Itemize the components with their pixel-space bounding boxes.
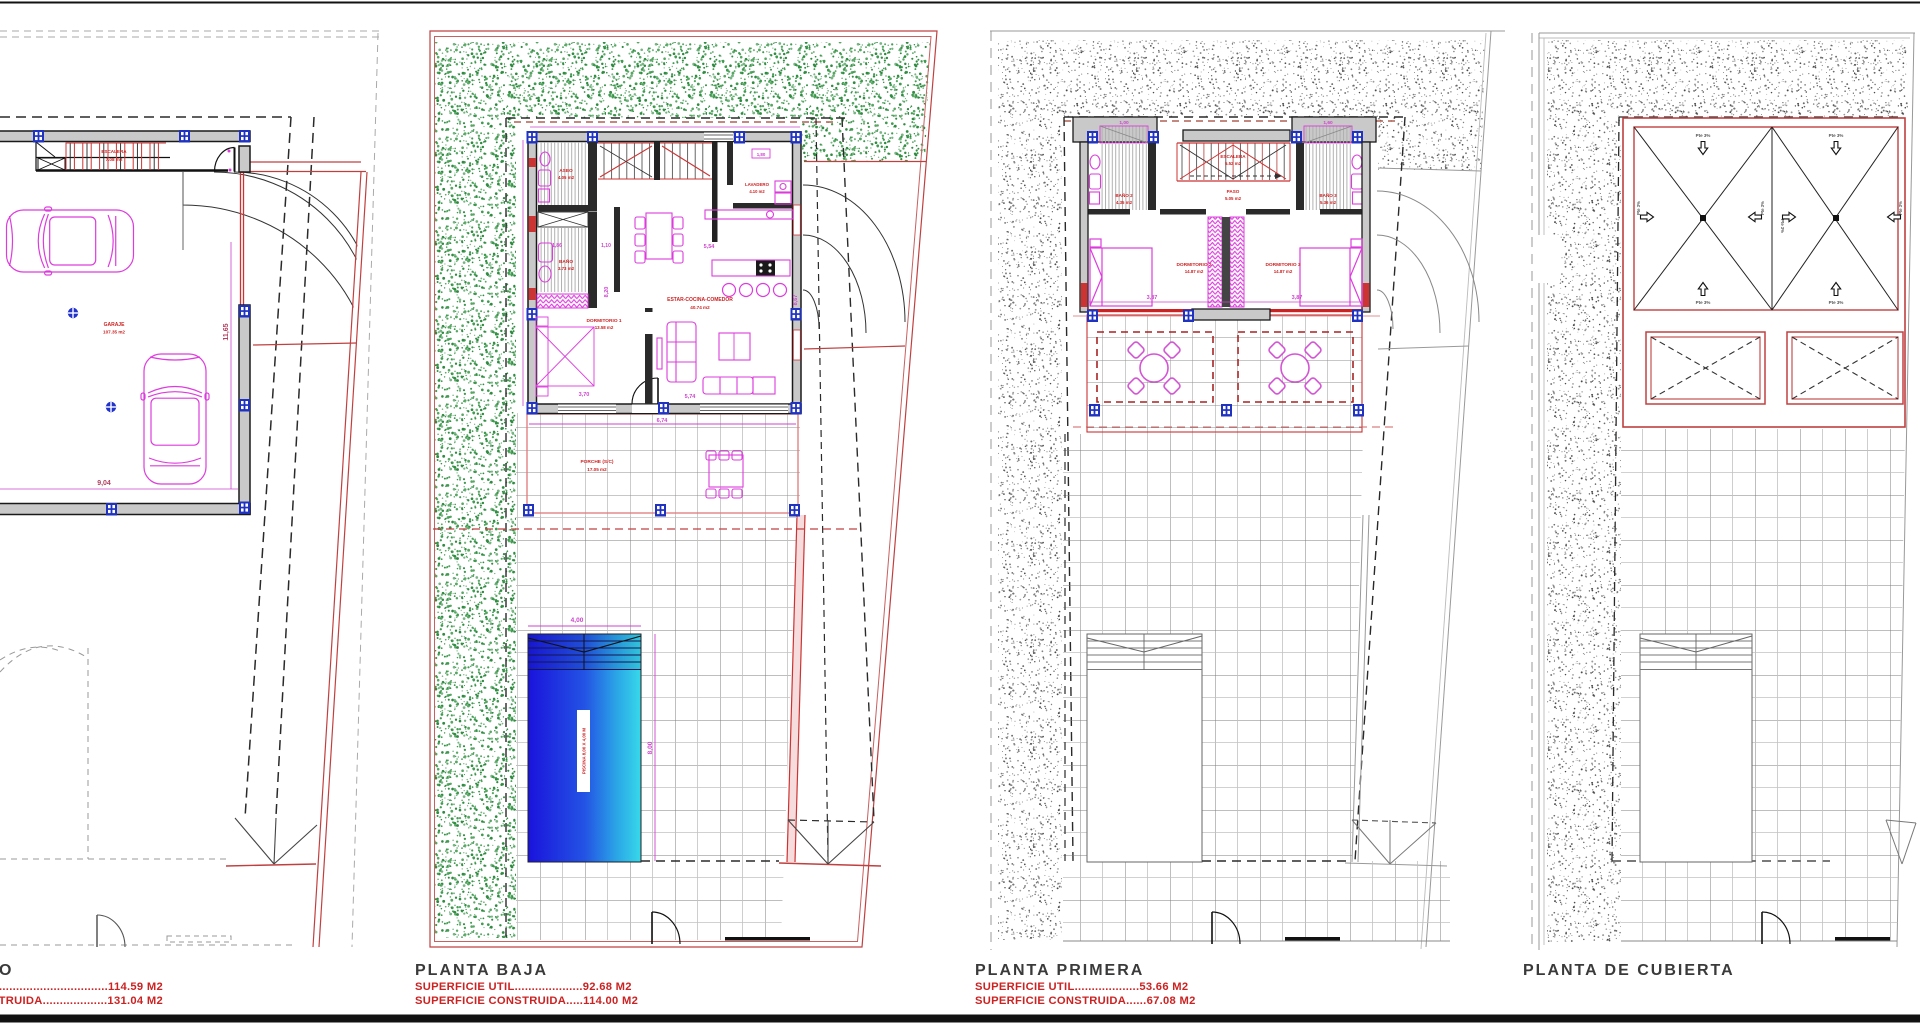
svg-text:DORMITORIO 3: DORMITORIO 3 [1265, 262, 1300, 268]
svg-text:ESCALERA: ESCALERA [1220, 154, 1246, 159]
svg-text:7.08 m2: 7.08 m2 [106, 157, 123, 162]
svg-text:9,04: 9,04 [97, 480, 111, 487]
svg-text:1,86: 1,86 [552, 243, 562, 249]
svg-text:4,00: 4,00 [571, 617, 584, 624]
svg-text:5,74: 5,74 [685, 394, 697, 400]
svg-text:107.35 m2: 107.35 m2 [103, 330, 125, 335]
svg-text:PASO: PASO [1227, 189, 1240, 194]
svg-text:SUPERFICIE UTIL...............: SUPERFICIE UTIL...................53.66 … [975, 981, 1188, 993]
svg-text:BAÑO 2: BAÑO 2 [1115, 192, 1133, 198]
svg-text:ESCALERA: ESCALERA [101, 149, 127, 154]
svg-text:1,60: 1,60 [1323, 120, 1333, 126]
svg-text:PLANTA BAJA: PLANTA BAJA [415, 962, 548, 979]
svg-text:Pte 3%: Pte 3% [1898, 201, 1903, 215]
svg-text:BAÑO 3: BAÑO 3 [1319, 192, 1337, 198]
svg-text:ASEO: ASEO [559, 168, 573, 174]
svg-text:40.74 m2: 40.74 m2 [690, 305, 710, 310]
svg-text:DORMITORIO 1: DORMITORIO 1 [586, 318, 621, 324]
svg-text:5.52 m2: 5.52 m2 [1225, 161, 1242, 166]
svg-text:..............................: .................................114.59 … [0, 981, 163, 993]
svg-text:PISCINA 8,00 X 4,00 M: PISCINA 8,00 X 4,00 M [582, 728, 587, 775]
svg-text:TRUIDA...................131.0: TRUIDA...................131.04 M2 [0, 995, 163, 1007]
svg-text:3.73 m2: 3.73 m2 [558, 266, 575, 271]
svg-text:4.35 m2: 4.35 m2 [1116, 200, 1133, 205]
svg-text:3,87: 3,87 [1147, 295, 1158, 301]
svg-text:Pte 3%: Pte 3% [1636, 201, 1641, 215]
svg-text:1,80: 1,80 [757, 152, 766, 157]
svg-text:SUPERFICIE CONSTRUIDA.....114.: SUPERFICIE CONSTRUIDA.....114.00 M2 [415, 995, 638, 1007]
svg-text:13.58 m2: 13.58 m2 [595, 325, 614, 330]
svg-text:PLANTA DE CUBIERTA: PLANTA DE CUBIERTA [1523, 962, 1735, 979]
svg-text:PORCHE (S/C): PORCHE (S/C) [580, 459, 613, 465]
svg-text:5.05 m2: 5.05 m2 [1225, 196, 1242, 201]
svg-text:3,87: 3,87 [1292, 295, 1303, 301]
svg-text:8,67: 8,67 [793, 295, 799, 306]
svg-text:PLANTA PRIMERA: PLANTA PRIMERA [975, 962, 1144, 979]
svg-text:6,74: 6,74 [657, 418, 669, 424]
svg-text:14.87 m2: 14.87 m2 [1274, 269, 1293, 274]
svg-text:DORMITORIO 2: DORMITORIO 2 [1176, 262, 1211, 268]
svg-text:4.05 m2: 4.05 m2 [558, 175, 575, 180]
svg-text:SUPERFICIE CONSTRUIDA......67.: SUPERFICIE CONSTRUIDA......67.08 M2 [975, 995, 1196, 1007]
svg-text:8,00: 8,00 [647, 741, 654, 754]
svg-text:Pte 3%: Pte 3% [1829, 300, 1844, 305]
svg-text:Pte 3%: Pte 3% [1696, 133, 1711, 138]
svg-text:11,65: 11,65 [223, 323, 230, 340]
svg-text:Pte 3%: Pte 3% [1829, 133, 1844, 138]
svg-text:LAVADERO: LAVADERO [745, 182, 770, 187]
svg-text:O: O [0, 962, 13, 979]
svg-text:3,70: 3,70 [579, 392, 590, 398]
svg-text:4.10 m2: 4.10 m2 [749, 189, 765, 194]
svg-text:5,54: 5,54 [704, 244, 716, 250]
svg-text:ESTAR-COCINA-COMEDOR: ESTAR-COCINA-COMEDOR [667, 297, 733, 303]
svg-text:BAÑO: BAÑO [559, 258, 573, 265]
svg-text:1,00: 1,00 [1119, 120, 1129, 126]
svg-text:GARAJE: GARAJE [104, 322, 126, 328]
svg-text:Pte 3%: Pte 3% [1760, 201, 1765, 215]
svg-text:14.87 m2: 14.87 m2 [1185, 269, 1204, 274]
svg-text:Pte 3%: Pte 3% [1780, 219, 1785, 233]
svg-text:SUPERFICIE UTIL...............: SUPERFICIE UTIL....................92.68… [415, 981, 632, 993]
svg-text:8,20: 8,20 [604, 287, 610, 298]
svg-text:5.36 m2: 5.36 m2 [1320, 200, 1337, 205]
svg-text:17.05 m2: 17.05 m2 [587, 467, 607, 472]
svg-text:Pte 3%: Pte 3% [1696, 300, 1711, 305]
svg-text:1,10: 1,10 [601, 243, 611, 249]
